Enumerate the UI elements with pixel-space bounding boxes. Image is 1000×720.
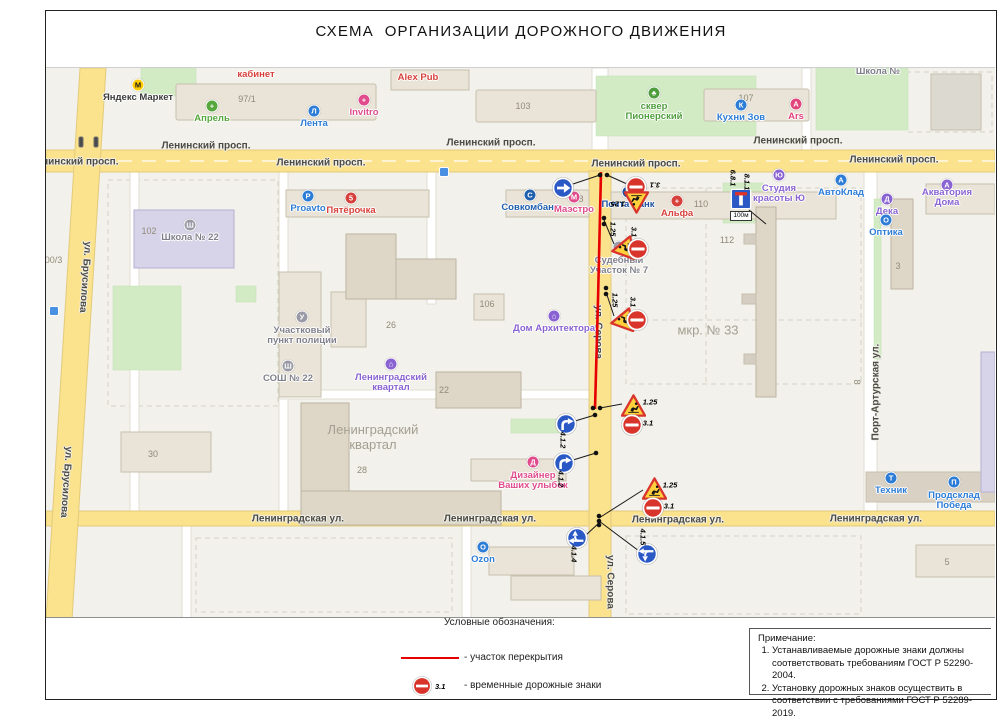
note-item: Устанавливаемые дорожные знаки должны со… bbox=[772, 645, 985, 683]
road-signs-layer: 3.11.251.253.11.253.11.253.14.1.24.1.21.… bbox=[46, 68, 995, 617]
notes-block: Примечание: Устанавливаемые дорожные зна… bbox=[749, 628, 991, 695]
page: { "title": "СХЕМА ОРГАНИЗАЦИИ ДОРОЖНОГО … bbox=[0, 0, 1000, 707]
sign-code-label: 1.25 bbox=[611, 293, 620, 308]
sign-code-label: 1.25 bbox=[643, 398, 658, 407]
sign-code-label: 1.25 bbox=[611, 200, 626, 209]
sign-6.8.1: 100м bbox=[730, 188, 752, 210]
sign-code-label: 3.1 bbox=[630, 227, 639, 237]
sign-1.25 bbox=[642, 477, 664, 499]
legend-closure-label: - участок перекрытия bbox=[464, 652, 563, 663]
note-item: Установку дорожных знаков осуществить в … bbox=[772, 683, 985, 720]
sign-plate-8.1.1: 100м bbox=[730, 211, 751, 221]
notes-list: Устанавливаемые дорожные знаки должны со… bbox=[758, 645, 985, 720]
sign-3.1 bbox=[642, 497, 664, 519]
sign-3.1 bbox=[626, 309, 648, 331]
legend-sign-code: 3.1 bbox=[435, 682, 445, 691]
no-entry-sign-sample bbox=[412, 676, 432, 696]
sign-code-label: 4.1.2 bbox=[557, 471, 566, 488]
map: Ленинский просп.Ленинский просп.Ленински… bbox=[46, 67, 995, 618]
sign-3.1 bbox=[621, 414, 643, 436]
legend-signs-label: - временные дорожные знаки bbox=[464, 680, 601, 691]
sign-code-label: 4.1.2 bbox=[559, 432, 568, 449]
sign-code-label: 1.25 bbox=[663, 481, 678, 490]
sign-4.1.5 bbox=[636, 543, 658, 565]
closure-line-sample bbox=[401, 657, 459, 659]
sign-3.1 bbox=[627, 238, 649, 260]
legend-heading: Условные обозначения: bbox=[444, 617, 555, 628]
sign-code-label: 3.1 bbox=[643, 419, 653, 428]
sign-code-label: 3.1 bbox=[664, 502, 674, 511]
sign-code-label: 4.1.4 bbox=[570, 546, 579, 563]
sign-code-label: 3.1 bbox=[629, 297, 638, 307]
drawing-frame: СХЕМА ОРГАНИЗАЦИИ ДОРОЖНОГО ДВИЖЕНИЯ bbox=[45, 10, 997, 700]
sign-1.25 bbox=[621, 394, 643, 416]
sign-code-label: 6.8.1 bbox=[729, 170, 738, 187]
scheme-sheet: СХЕМА ОРГАНИЗАЦИИ ДОРОЖНОГО ДВИЖЕНИЯ bbox=[0, 0, 1000, 707]
sign-code-label: 4.1.5 bbox=[639, 529, 648, 546]
notes-heading: Примечание: bbox=[758, 633, 985, 644]
sign-code-label: 3.1 bbox=[650, 181, 660, 190]
sign-1.25 bbox=[627, 192, 649, 214]
sign-code-label: 8.1.1 bbox=[743, 174, 752, 191]
page-title: СХЕМА ОРГАНИЗАЦИИ ДОРОЖНОГО ДВИЖЕНИЯ bbox=[46, 23, 996, 40]
sign-4.1.2 bbox=[552, 177, 574, 199]
sign-code-label: 1.25 bbox=[609, 222, 618, 237]
